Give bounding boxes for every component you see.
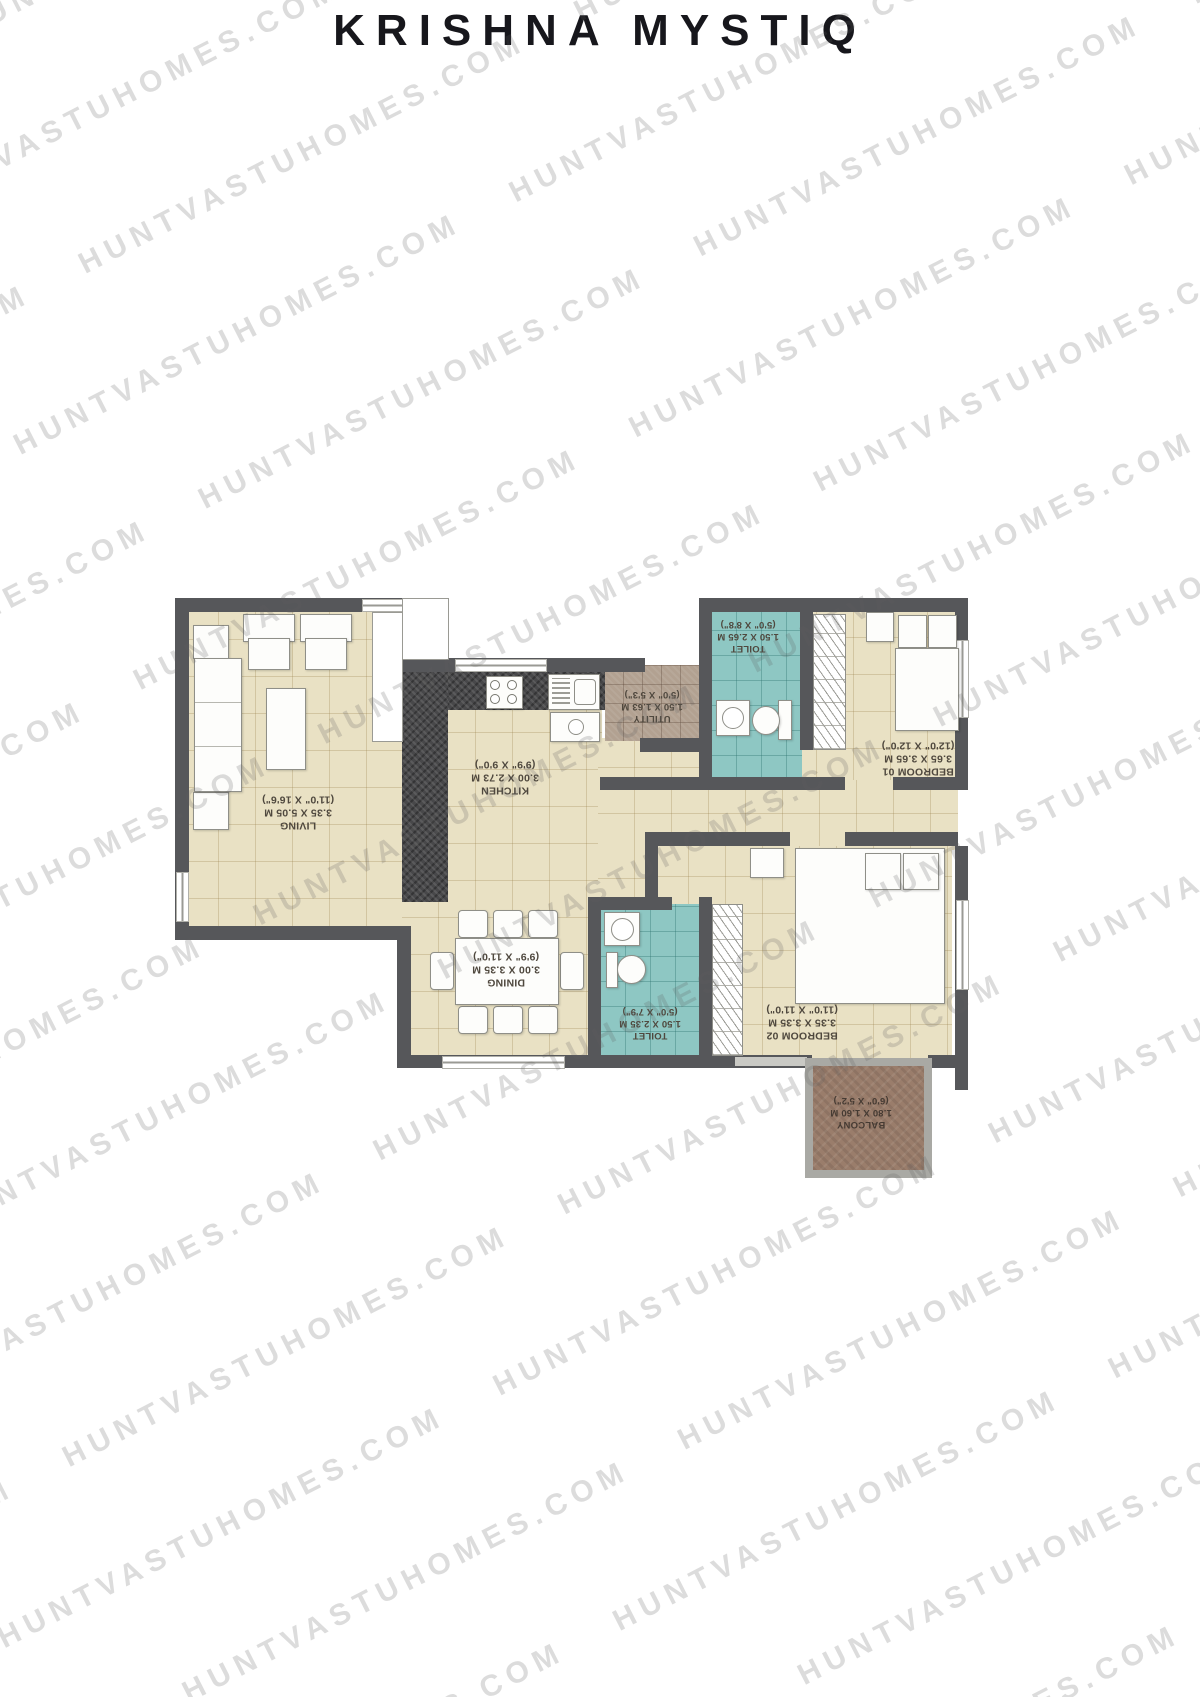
room-dim-ft: (5'0" X 7'9") — [619, 1005, 681, 1017]
end-table — [193, 792, 229, 830]
room-dim-m: 3.65 X 3.65 M — [882, 752, 955, 765]
washing-machine — [550, 712, 600, 742]
room-label-toilet2: TOILET 1.50 X 2.35 M (5'0" X 7'9") — [619, 1005, 681, 1041]
pillow — [865, 853, 901, 890]
floor-plan-page: KRISHNA MYSTIQ — [0, 0, 1200, 1697]
room-dim-m: 1.50 X 1.63 M — [621, 700, 683, 712]
room-dim-m: 3.35 X 5.05 M — [262, 806, 334, 819]
wall — [588, 897, 601, 1068]
wall — [699, 897, 712, 1068]
room-label-balcony: BALCONY 1.80 X 1.60 M (6'0" X 5'2") — [830, 1094, 892, 1130]
room-name: TOILET — [619, 1029, 681, 1041]
room-dim-ft: (5'0" X 8'8") — [717, 618, 779, 630]
window — [455, 659, 547, 672]
room-label-toilet1: TOILET 1.50 X 2.65 M (5'0" X 8'8") — [717, 618, 779, 654]
room-dim-ft: (9'9" X 9'0") — [471, 758, 539, 771]
room-name: KITCHEN — [471, 784, 539, 797]
wall — [645, 832, 790, 846]
room-dim-m: 1.50 X 2.35 M — [619, 1017, 681, 1029]
wall — [699, 598, 712, 790]
room-dim-ft: (11'0" X 16'6") — [262, 793, 334, 806]
room-label-bedroom1: BEDROOM 01 3.65 X 3.65 M (12'0" X 12'0") — [882, 739, 955, 778]
room-label-kitchen: KITCHEN 3.00 X 2.73 M (9'9" X 9'0") — [471, 758, 539, 797]
room-label-bedroom2: BEDROOM 02 3.35 X 3.35 M (11'0" X 11'0") — [766, 1003, 838, 1042]
dining-chair — [493, 910, 523, 938]
dining-chair — [458, 910, 488, 938]
room-dim-m: 3.00 X 2.73 M — [471, 771, 539, 784]
room-dim-ft: (9'9" X 11'0") — [472, 950, 540, 963]
window — [956, 900, 969, 990]
sofa — [194, 658, 242, 792]
armchair — [305, 638, 347, 670]
end-table — [193, 625, 229, 659]
wall — [397, 926, 411, 1068]
room-dim-m: 3.35 X 3.35 M — [766, 1016, 838, 1029]
room-name: BEDROOM 02 — [766, 1029, 838, 1042]
wall — [699, 598, 968, 612]
pillow — [898, 615, 927, 648]
window — [442, 1056, 565, 1069]
wardrobe — [813, 614, 846, 750]
balcony-door — [735, 1057, 807, 1066]
dining-chair — [528, 1006, 558, 1034]
wall — [845, 832, 958, 846]
room-label-living: LIVING 3.35 X 5.05 M (11'0" X 16'6") — [262, 793, 334, 832]
dining-chair — [458, 1006, 488, 1034]
room-dim-ft: (11'0" X 11'0") — [766, 1003, 838, 1016]
wall — [640, 738, 712, 752]
wall — [600, 777, 845, 790]
room-dim-m: 1.50 X 2.65 M — [717, 630, 779, 642]
dining-chair — [493, 1006, 523, 1034]
nightstand — [750, 848, 784, 878]
kitchen-tall-unit — [402, 658, 448, 902]
room-name: BALCONY — [830, 1118, 892, 1130]
room-name: BEDROOM 01 — [882, 765, 955, 778]
dining-chair — [528, 910, 558, 938]
coffee-table — [266, 688, 306, 770]
kitchen-sink — [548, 674, 600, 710]
room-dim-ft: (6'0" X 5'2") — [830, 1094, 892, 1106]
nightstand — [866, 612, 894, 642]
room-dim-m: 1.80 X 1.60 M — [830, 1106, 892, 1118]
room-name: LIVING — [262, 819, 334, 832]
room-dim-m: 3.00 X 3.35 M — [472, 963, 540, 976]
room-name: UTILITY — [621, 712, 683, 724]
room-name: DINING — [472, 976, 540, 989]
pillow — [928, 615, 957, 648]
pillow — [903, 853, 939, 890]
dining-chair — [560, 952, 584, 990]
wall — [893, 777, 968, 790]
washbasin — [604, 912, 640, 946]
room-label-dining: DINING 3.00 X 3.35 M (9'9" X 11'0") — [472, 950, 540, 989]
room-name: TOILET — [717, 642, 779, 654]
floor-plan: LIVING 3.35 X 5.05 M (11'0" X 16'6") KIT… — [0, 0, 1200, 1697]
living-kitchen-partition — [372, 612, 403, 742]
room-label-utility: UTILITY 1.50 X 1.63 M (5'0" X 5'3") — [621, 688, 683, 724]
room-dim-ft: (12'0" X 12'0") — [882, 739, 955, 752]
stove — [486, 676, 523, 709]
wardrobe — [712, 904, 743, 1056]
washbasin — [716, 700, 750, 736]
dining-chair — [430, 952, 454, 990]
bed — [895, 648, 959, 731]
wall-white-strip — [402, 598, 449, 660]
wall — [175, 926, 404, 940]
wall — [800, 598, 813, 750]
room-dim-ft: (5'0" X 5'3") — [621, 688, 683, 700]
armchair — [248, 638, 290, 670]
window — [176, 872, 189, 922]
